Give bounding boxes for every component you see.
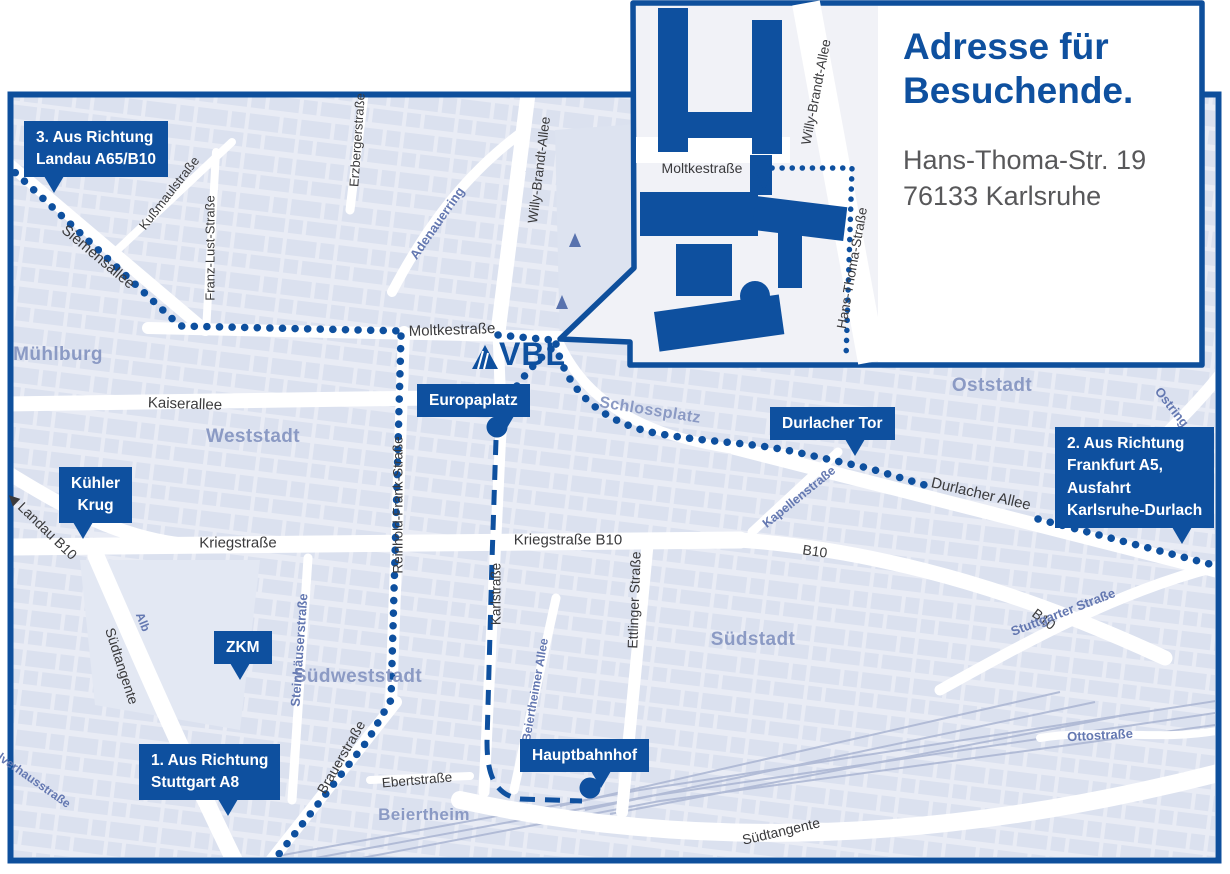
street-label: Weststadt: [206, 426, 300, 448]
callout-line: Landau A65/B10: [36, 149, 156, 171]
street-label: Beiertheim: [378, 805, 470, 825]
callout-tail-icon: [73, 522, 93, 539]
inset-street-label: Moltkestraße: [662, 160, 743, 176]
inset-address: Hans-Thoma-Str. 19 76133 Karlsruhe: [903, 142, 1146, 215]
callout-hauptbahnhof: Hauptbahnhof: [520, 739, 649, 772]
callout-europaplatz: Europaplatz: [417, 384, 530, 417]
callout-tail-icon: [230, 663, 250, 680]
callout-durlacher-tor: Durlacher Tor: [770, 407, 895, 440]
street-label: Kriegstraße B10: [514, 532, 622, 549]
callout-2-aus-richtung: 2. Aus RichtungFrankfurt A5,AusfahrtKarl…: [1055, 427, 1214, 528]
callout-line: 1. Aus Richtung: [151, 750, 268, 772]
inset-title-line2: Besuchende.: [903, 69, 1133, 113]
vbl-triangle-icon: [471, 344, 499, 370]
inset-title-line1: Adresse für: [903, 25, 1133, 69]
inset-title: Adresse für Besuchende.: [903, 25, 1133, 112]
street-label: Kriegstraße: [199, 535, 277, 552]
karlsruhe-directions-map: VBL Adresse für Besuchende. Hans-Thoma-S…: [0, 0, 1230, 874]
street-label: Karlstraße: [489, 563, 504, 625]
street-label: B10: [802, 541, 829, 560]
callout-line: Frankfurt A5,: [1067, 455, 1202, 477]
callout-line: 3. Aus Richtung: [36, 127, 156, 149]
street-label: Oststadt: [952, 375, 1032, 397]
callout-tail-icon: [591, 771, 611, 788]
street-label: Ettlinger Straße: [624, 551, 643, 649]
callout-line: 2. Aus Richtung: [1067, 433, 1202, 455]
callout-tail-icon: [1172, 527, 1192, 544]
street-label: Südstadt: [711, 629, 795, 651]
callout-line: Krug: [71, 495, 120, 517]
callout-1-aus-richtung: 1. Aus RichtungStuttgart A8: [139, 744, 280, 800]
callout-tail-icon: [494, 416, 514, 433]
callout-line: Europaplatz: [429, 390, 518, 412]
inset-address-line1: Hans-Thoma-Str. 19: [903, 142, 1146, 178]
callout-k-hler: KühlerKrug: [59, 467, 132, 523]
callout-line: Hauptbahnhof: [532, 745, 637, 767]
callout-line: Karlsruhe-Durlach: [1067, 500, 1202, 522]
callout-3-aus-richtung: 3. Aus RichtungLandau A65/B10: [24, 121, 168, 177]
vbl-logo-text: VBL: [499, 338, 566, 370]
callout-zkm: ZKM: [214, 631, 272, 664]
street-label: Kaiserallee: [148, 394, 223, 414]
callout-tail-icon: [44, 176, 64, 193]
street-label: Franz-Lust-Straße: [203, 195, 218, 300]
callout-tail-icon: [845, 439, 865, 456]
callout-tail-icon: [218, 799, 238, 816]
street-label: Mühlburg: [13, 344, 103, 366]
vbl-logo: VBL: [471, 338, 566, 370]
callout-line: Stuttgart A8: [151, 772, 268, 794]
callout-line: Ausfahrt: [1067, 478, 1202, 500]
callout-line: Kühler: [71, 473, 120, 495]
street-label: Reinhold-Frank-Straße: [391, 436, 406, 573]
street-label: Südweststadt: [294, 666, 422, 688]
callout-line: Durlacher Tor: [782, 413, 883, 435]
inset-address-line2: 76133 Karlsruhe: [903, 178, 1146, 214]
callout-line: ZKM: [226, 637, 260, 659]
street-label: Moltkestraße: [408, 320, 495, 340]
